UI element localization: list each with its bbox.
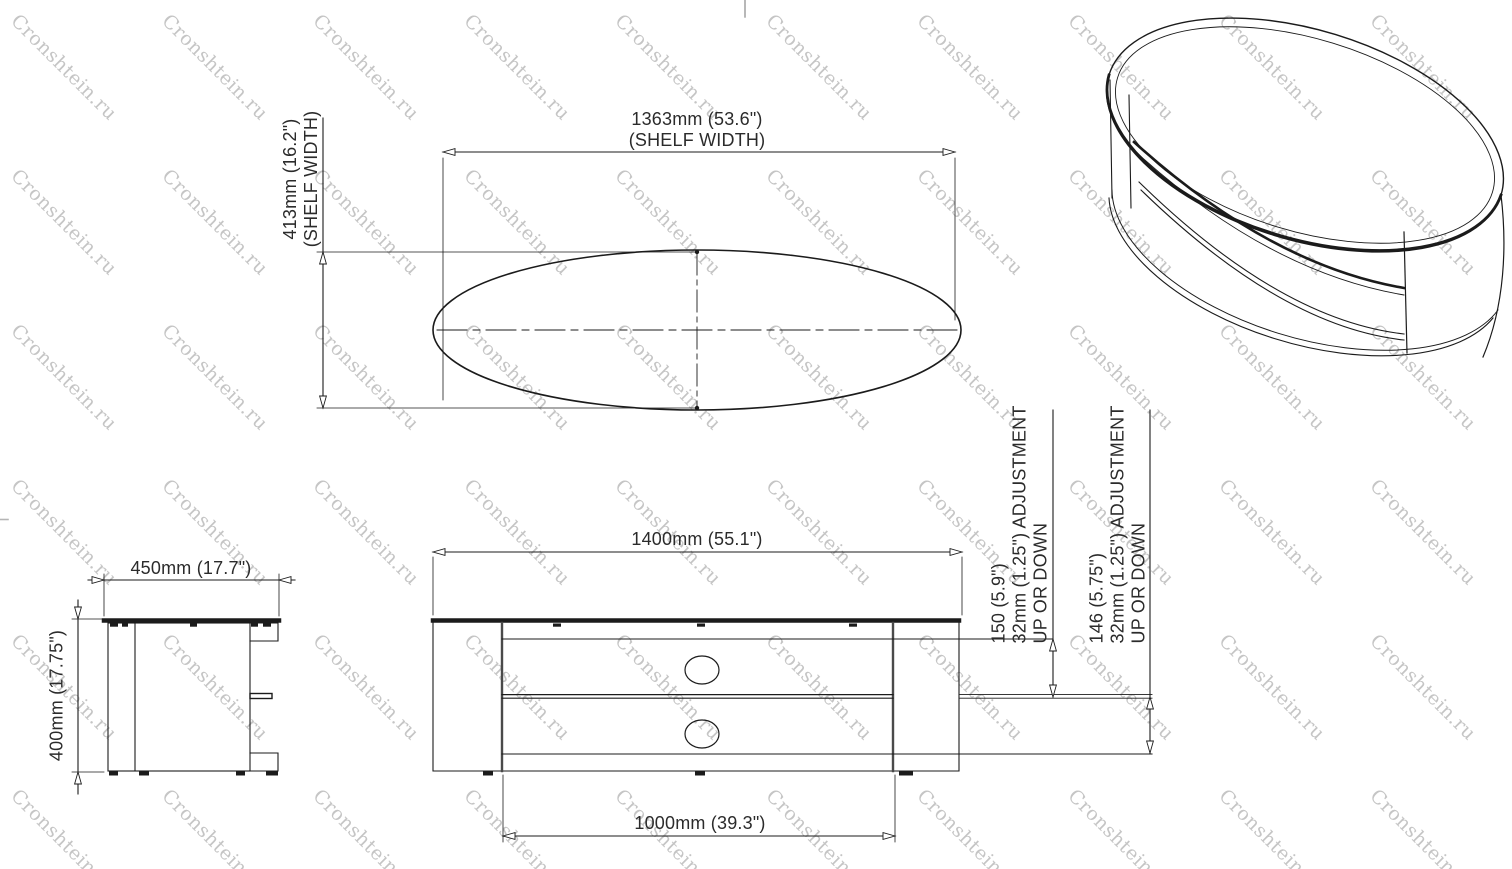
dim-label-shelf-depth: 413mm (16.2") (SHELF WIDTH) bbox=[280, 104, 322, 254]
cable-hole-bottom bbox=[685, 720, 719, 748]
top-surface-outer bbox=[1078, 0, 1512, 295]
front-body bbox=[433, 623, 959, 771]
dim-value: 450mm (17.7") bbox=[91, 558, 291, 579]
side-mid-shelf bbox=[250, 694, 272, 699]
perspective-view bbox=[1078, 0, 1512, 357]
front-feet bbox=[483, 772, 913, 776]
witness-400 bbox=[72, 619, 104, 772]
crop-artifacts bbox=[0, 0, 745, 520]
dim-sublabel: (SHELF WIDTH) bbox=[301, 104, 322, 254]
dim-label-side-depth: 450mm (17.7") bbox=[91, 558, 291, 579]
dim-label-base-width: 1000mm (39.3") bbox=[550, 813, 850, 834]
shelf2-front-edge bbox=[1139, 182, 1404, 334]
side-feet bbox=[109, 772, 278, 776]
dim-value: 413mm (16.2") bbox=[280, 104, 301, 254]
front-mid-shelf bbox=[502, 695, 893, 699]
dim-sublabel: (SHELF WIDTH) bbox=[547, 130, 847, 151]
dim-adjustment: 32mm (1.25") ADJUSTMENT bbox=[1108, 404, 1129, 644]
dim-value: 400mm (17.75") bbox=[47, 621, 68, 771]
dim-value: 1000mm (39.3") bbox=[550, 813, 850, 834]
witness-1400 bbox=[433, 557, 962, 615]
front-mid-shelf-extension bbox=[960, 695, 1152, 699]
dim-adjustment-direction: UP OR DOWN bbox=[1129, 404, 1150, 644]
dim-label-front-width: 1400mm (55.1") bbox=[547, 529, 847, 550]
dim-adjustment: 32mm (1.25") ADJUSTMENT bbox=[1010, 404, 1031, 644]
front-fixing-ticks bbox=[553, 624, 857, 627]
top-view bbox=[317, 118, 961, 410]
dim-value: 1400mm (55.1") bbox=[547, 529, 847, 550]
side-body bbox=[108, 623, 250, 771]
tabletop-edge bbox=[1107, 75, 1501, 250]
side-view bbox=[72, 574, 295, 794]
dim-label-shelf-width: 1363mm (53.6") (SHELF WIDTH) bbox=[547, 109, 847, 151]
cable-hole-top bbox=[685, 656, 719, 684]
side-fixing-ticks bbox=[110, 624, 271, 627]
shelf1-underside bbox=[1136, 152, 1404, 295]
dim-label-side-height: 400mm (17.75") bbox=[47, 621, 68, 771]
side-bottom-bracket bbox=[250, 753, 278, 771]
dim-value: 1363mm (53.6") bbox=[547, 109, 847, 130]
dim-label-shelf-gap-bottom: 146 (5.75") 32mm (1.25") ADJUSTMENT UP O… bbox=[1087, 404, 1150, 644]
shelf2-underside bbox=[1141, 190, 1404, 340]
dim-label-shelf-gap-top: 150 (5.9") 32mm (1.25") ADJUSTMENT UP OR… bbox=[989, 404, 1052, 644]
dim-adjustment-direction: UP OR DOWN bbox=[1031, 404, 1052, 644]
dim-value: 150 (5.9") bbox=[989, 404, 1010, 644]
dim-value: 146 (5.75") bbox=[1087, 404, 1108, 644]
technical-drawing-page: Cronshtein.ruCronshtein.ruCronshtein.ruC… bbox=[0, 0, 1512, 869]
base-outline-upper bbox=[1112, 190, 1498, 350]
